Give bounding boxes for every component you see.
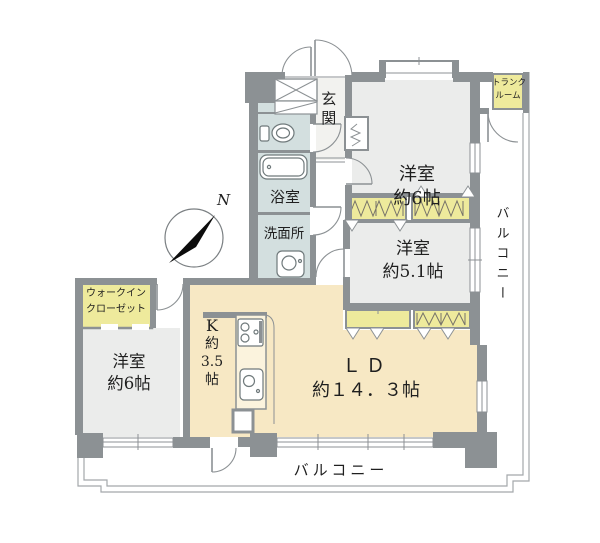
bedroom-mid-door-arc: [316, 249, 344, 277]
kitchen-label-k: K: [192, 316, 232, 336]
kitchen-cabinet: [233, 410, 253, 432]
bedroom-mid-label: 洋室 約5.1帖: [352, 238, 474, 284]
floor-plan: N 玄関 洋室 約6帖 トランク ルーム バルコニー 洋室 約5.1帖 浴室 洗…: [0, 0, 600, 543]
room-name: 洋室: [80, 351, 178, 373]
shoe-closet: [275, 79, 317, 114]
kitchen-label: K 約 3.5 帖: [192, 316, 232, 390]
compass-north-label: N: [217, 190, 230, 210]
toilet-icon: [260, 124, 294, 142]
balcony-door-arc: [212, 448, 236, 472]
washroom-door-arc: [313, 207, 341, 235]
washroom-label: 洗面所: [253, 225, 315, 243]
wall-pillar: [465, 432, 497, 468]
wic-label-line1: ウォークイン: [80, 286, 152, 302]
kitchen-label-size: 3.5: [192, 354, 232, 372]
bedroom-left-label: 洋室 約6帖: [80, 351, 178, 396]
trunk-room-label: トランク ルーム: [492, 77, 524, 103]
room-size: 約5.1帖: [352, 261, 474, 284]
kitchen-sink-icon: [240, 369, 263, 400]
room-name: 洋室: [352, 238, 474, 261]
washbasin-icon: [277, 251, 304, 277]
living-dining-label: ＬＤ 約１４．３帖: [286, 354, 446, 402]
stove-icon: [238, 319, 263, 346]
bedroom-top-label: 洋室 約6帖: [357, 163, 477, 212]
trunk-room-door-arc: [488, 112, 518, 142]
bathtub-icon: [260, 155, 307, 179]
wic-opening: [132, 324, 149, 330]
wic-opening: [101, 324, 118, 330]
room-name: ＬＤ: [286, 354, 446, 379]
walk-in-closet-label: ウォークイン クローゼット: [80, 286, 152, 317]
room-size: 約１４．３帖: [286, 379, 446, 402]
kitchen-label-yaku: 約: [192, 336, 232, 354]
entrance-door-arc: [282, 47, 311, 76]
room-name: 洋室: [357, 163, 477, 187]
trunk-room-label-line2: ルーム: [492, 90, 524, 103]
kitchen-label-jo: 帖: [192, 372, 232, 390]
room-size: 約6帖: [80, 373, 178, 395]
entrance-label: 玄関: [318, 80, 338, 140]
bedroom-left-door-arc: [157, 284, 183, 310]
room-size: 約6帖: [357, 187, 477, 211]
trunk-room-label-line1: トランク: [492, 77, 524, 90]
wall-pillar: [77, 433, 103, 458]
compass-icon: [165, 209, 223, 267]
pipe-space-niche: [345, 117, 368, 150]
bathroom-label: 浴室: [257, 187, 313, 207]
entrance-door-arc: [315, 40, 352, 76]
balcony-bottom-label: バルコニー: [280, 460, 402, 480]
wic-label-line2: クローゼット: [80, 302, 152, 318]
balcony-right-label: バルコニー: [492, 196, 510, 316]
wall-pillar: [250, 433, 277, 457]
